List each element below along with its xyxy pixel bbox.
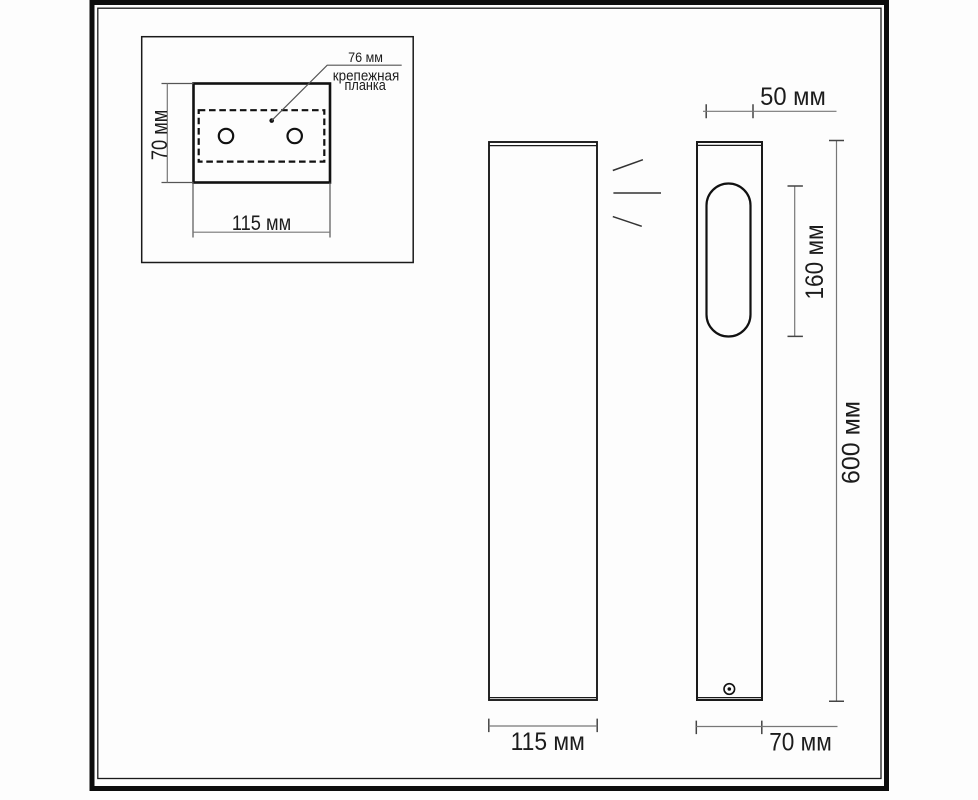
svg-text:160 мм: 160 мм — [801, 225, 829, 300]
svg-text:76 мм: 76 мм — [348, 49, 383, 65]
svg-text:115 мм: 115 мм — [511, 728, 585, 756]
svg-text:70 мм: 70 мм — [769, 728, 832, 756]
svg-text:115 мм: 115 мм — [232, 211, 291, 235]
svg-text:600 мм: 600 мм — [838, 401, 866, 484]
svg-text:50 мм: 50 мм — [760, 83, 826, 111]
svg-text:планка: планка — [345, 77, 387, 94]
svg-text:70 мм: 70 мм — [147, 110, 172, 161]
